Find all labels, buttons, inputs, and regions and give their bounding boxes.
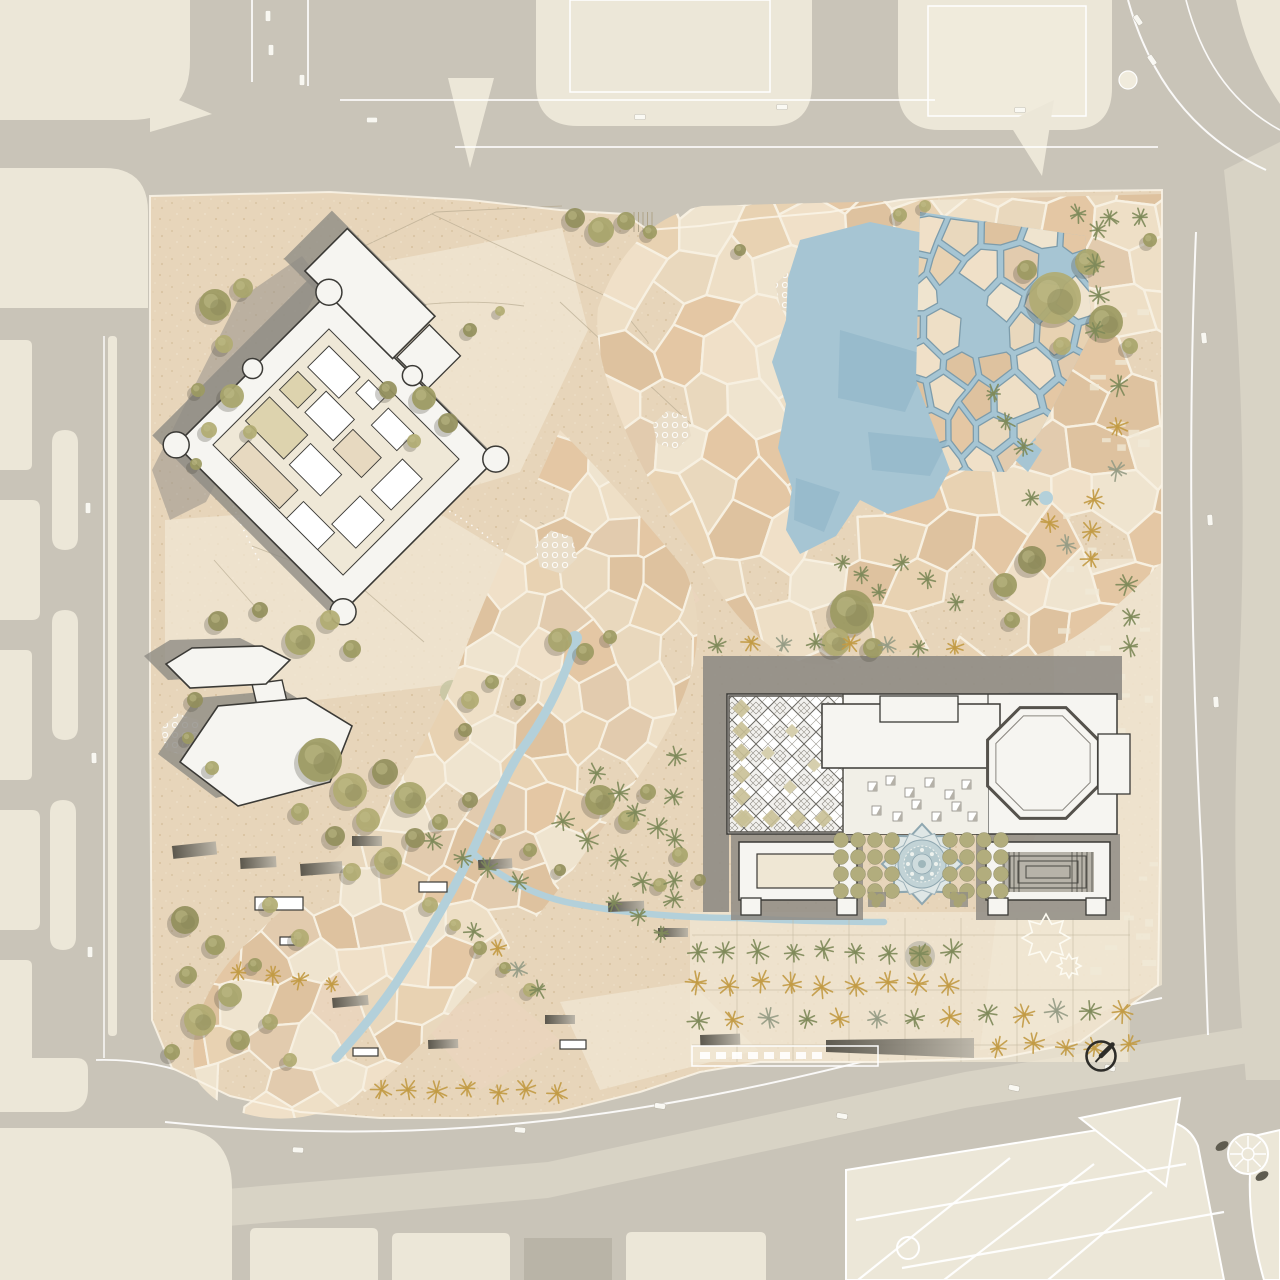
car <box>299 75 305 86</box>
road-median <box>50 800 76 950</box>
shade-canopy <box>240 856 277 869</box>
city-block <box>0 1058 88 1112</box>
car <box>1207 514 1213 525</box>
road-median <box>108 336 117 1036</box>
city-block <box>0 650 32 780</box>
site-plan-screenshot <box>0 0 1280 1280</box>
shade-canopy <box>428 1039 458 1049</box>
octagon-hall <box>988 708 1099 819</box>
car <box>367 117 378 123</box>
car <box>1213 696 1219 707</box>
car <box>1201 332 1208 344</box>
car <box>635 114 646 120</box>
road-median <box>52 430 78 550</box>
city-block <box>0 500 40 620</box>
shade-canopy <box>700 1034 740 1046</box>
car <box>1015 107 1026 113</box>
city-block <box>392 1233 510 1280</box>
kiosk <box>419 882 447 892</box>
car <box>268 45 274 56</box>
car <box>265 11 271 22</box>
shade-canopy <box>545 1015 575 1024</box>
city-block <box>250 1228 378 1280</box>
shade-canopy <box>352 836 382 846</box>
city-block <box>0 1128 232 1280</box>
city-block <box>0 810 40 930</box>
city-block <box>0 168 148 308</box>
car <box>87 947 93 958</box>
car <box>514 1127 526 1134</box>
city-block <box>0 340 32 470</box>
car <box>777 104 788 110</box>
site-plan-map <box>0 0 1280 1280</box>
city-block <box>626 1232 766 1280</box>
car <box>91 752 97 763</box>
city-block <box>0 960 32 1070</box>
car <box>292 1147 303 1153</box>
road-median <box>52 610 78 740</box>
kiosk <box>560 1040 586 1049</box>
kiosk <box>353 1048 378 1056</box>
car <box>85 503 91 514</box>
